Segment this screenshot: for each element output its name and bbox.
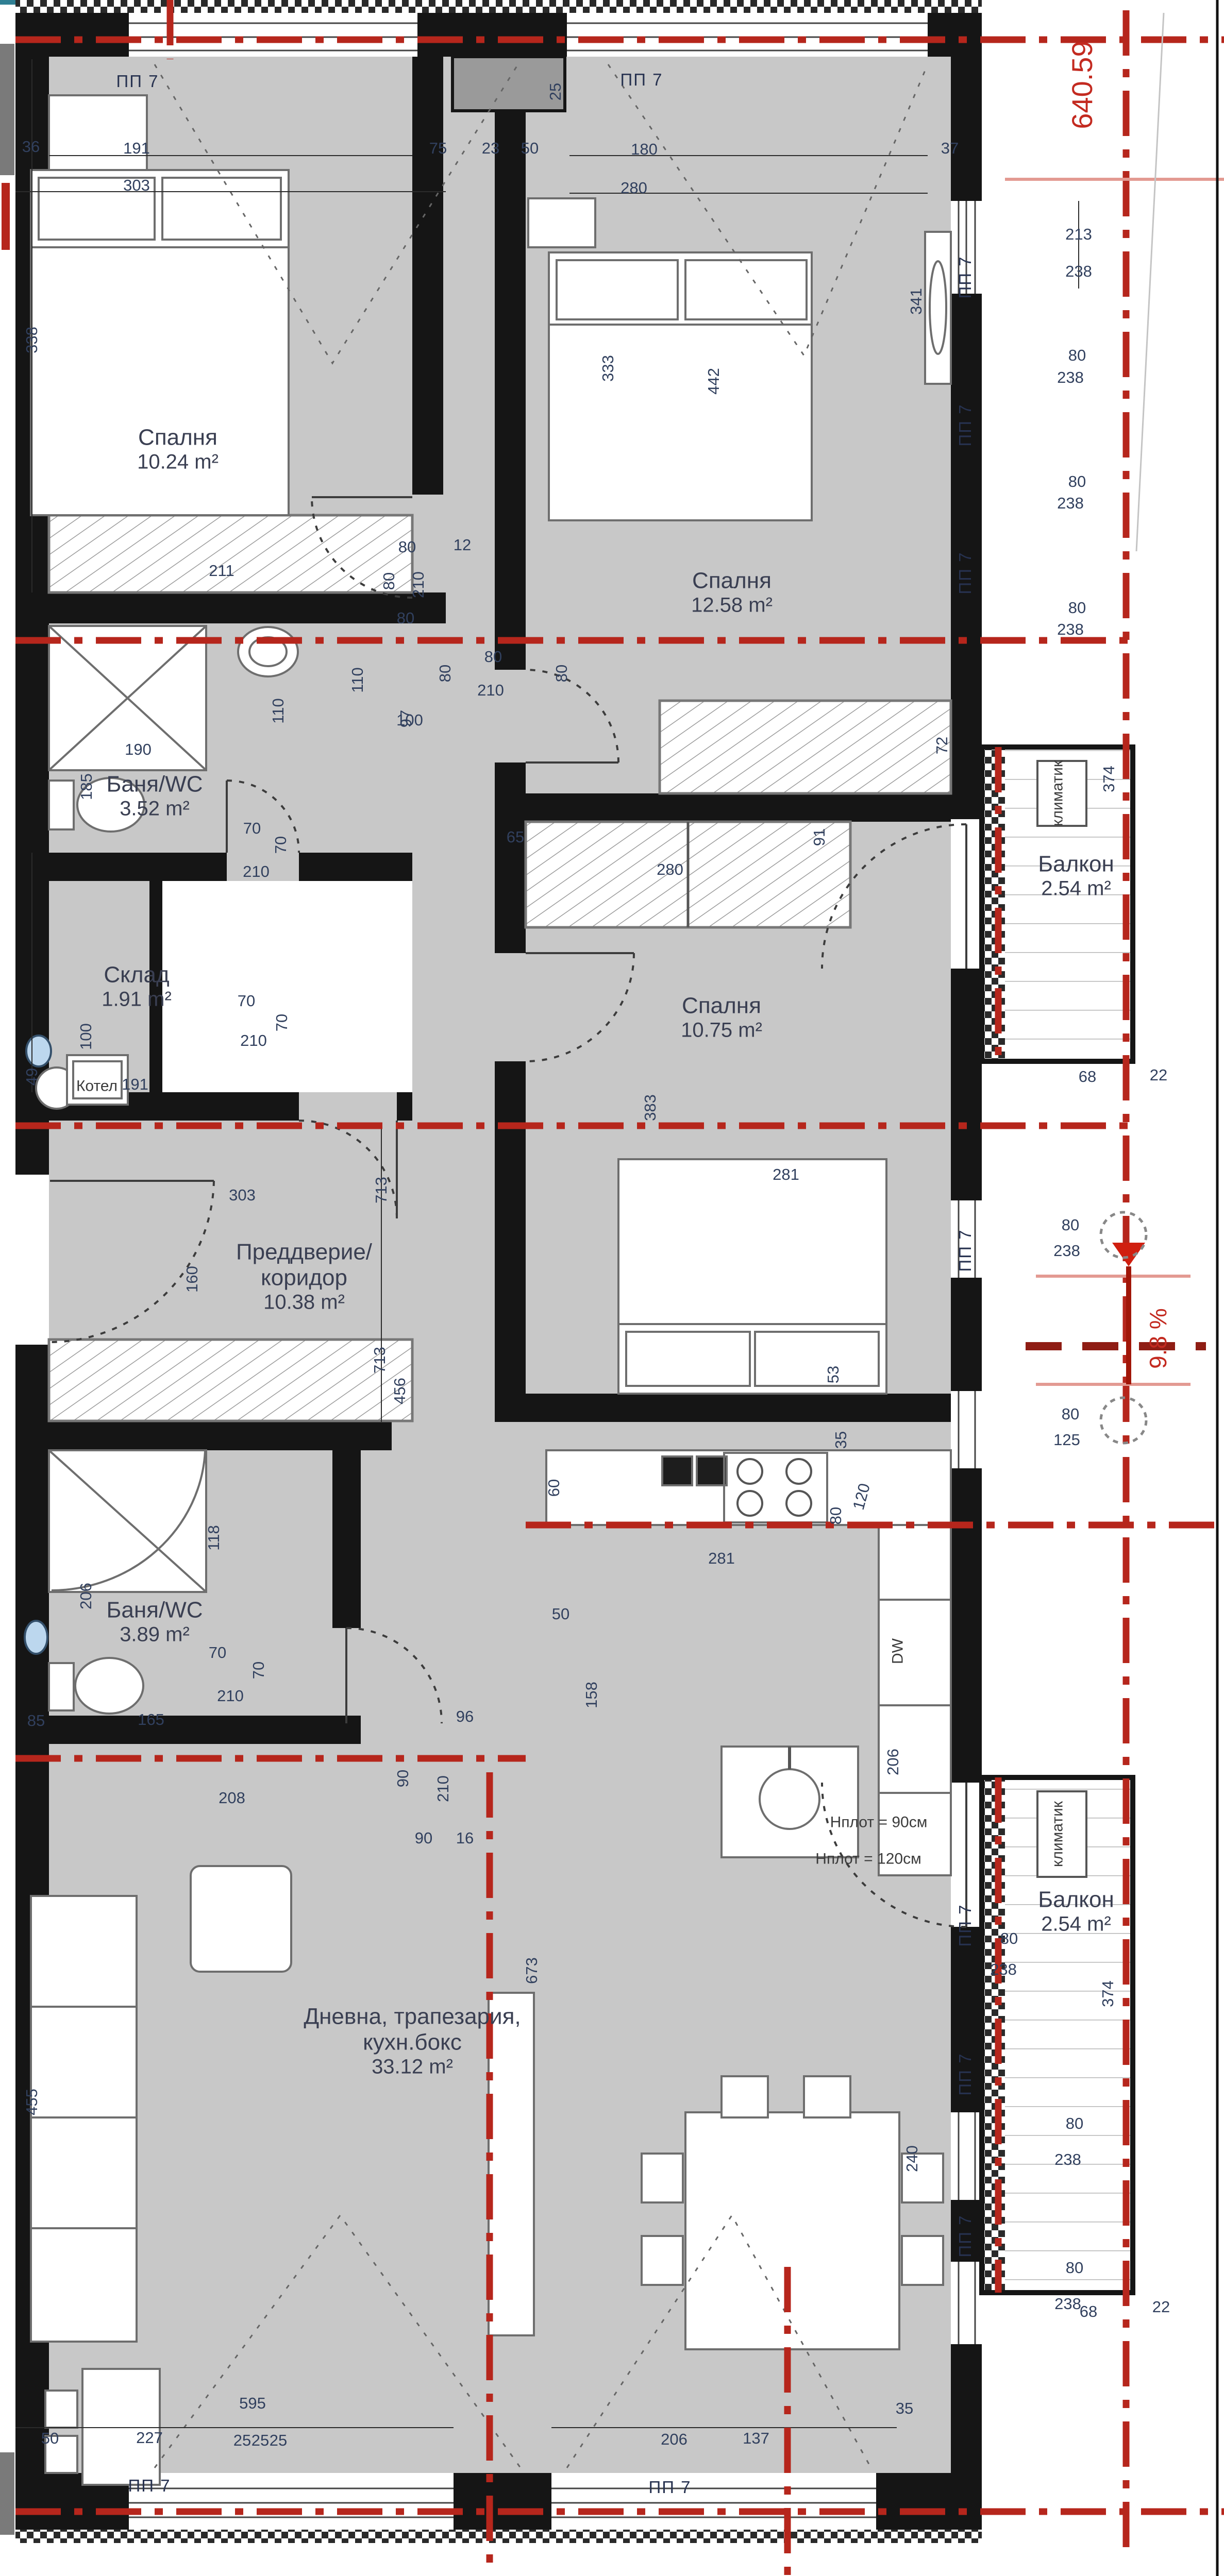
dimension-label: 35 <box>833 1431 849 1449</box>
dimension-label: 70 <box>209 1645 226 1661</box>
room-label: Баня/WC3.52 m² <box>107 772 203 821</box>
dimension-label: 673 <box>524 1957 540 1984</box>
panel-type-label: ПП 7 <box>957 552 974 595</box>
panel-type-label: ПП 7 <box>621 71 663 89</box>
dimension-label: 72 <box>934 737 950 754</box>
dimension-label: 80 <box>381 572 397 590</box>
room-name: Спалня <box>691 568 773 594</box>
annotation-text: DW <box>890 1638 906 1664</box>
dimension-label: 90 <box>415 1830 432 1846</box>
floorplan-page: 3619130375235025180280372132388023880238… <box>0 0 1224 2576</box>
dimension-label: 238 <box>1065 263 1092 280</box>
dimension-label: 210 <box>410 571 427 598</box>
text-overlay: 3619130375235025180280372132388023880238… <box>0 0 1224 2576</box>
panel-type-label: ПП 7 <box>649 2479 692 2496</box>
room-name: Баня/WC <box>107 1598 203 1623</box>
dimension-label: 191 <box>122 1076 148 1093</box>
room-label: Спалня12.58 m² <box>691 568 773 617</box>
annotation-text: климатик <box>1049 1801 1065 1867</box>
dimension-label: 206 <box>885 1749 901 1775</box>
room-area: 3.89 m² <box>107 1623 203 1647</box>
dimension-label: 80 <box>437 665 454 682</box>
dimension-label: 60 <box>546 1479 562 1497</box>
dimension-label: 213 <box>1065 226 1092 243</box>
room-area: 2.54 m² <box>1038 1913 1114 1936</box>
dimension-label: 137 <box>743 2430 769 2447</box>
room-area: 10.24 m² <box>137 451 219 474</box>
dimension-label: 100 <box>396 712 423 728</box>
dimension-label: 110 <box>270 698 287 723</box>
dimension-label: 333 <box>600 355 616 382</box>
dimension-label: 50 <box>552 1606 569 1622</box>
room-label: Спалня10.24 m² <box>137 425 219 474</box>
dimension-label: 165 <box>138 1711 164 1728</box>
dimension-label: 50 <box>41 2430 59 2447</box>
dimension-label: 158 <box>583 1682 600 1708</box>
room-area: 1.91 m² <box>102 988 172 1011</box>
dimension-label: 35 <box>896 2400 913 2417</box>
room-label: Балкон2.54 m² <box>1038 1887 1114 1936</box>
room-area: 12.58 m² <box>691 594 773 617</box>
dimension-label: 80 <box>397 610 414 626</box>
dimension-label: 90 <box>395 1770 411 1787</box>
slope-label: 9.8 % <box>1146 1308 1171 1369</box>
dimension-label: 383 <box>642 1094 659 1121</box>
dimension-label: 37 <box>941 140 959 157</box>
dimension-label: 80 <box>1062 1217 1079 1233</box>
room-label: Баня/WC3.89 m² <box>107 1598 203 1647</box>
room-area: 10.75 m² <box>681 1019 762 1042</box>
dimension-label: 713 <box>373 1177 390 1204</box>
dimension-label: 303 <box>123 177 150 194</box>
dimension-label: 25 <box>251 2432 269 2449</box>
room-label: Спалня10.75 m² <box>681 993 762 1042</box>
dimension-label: 85 <box>27 1713 45 1729</box>
room-name: Преддверие/ коридор <box>236 1240 372 1291</box>
dimension-label: 80 <box>1068 600 1086 616</box>
dimension-label: 70 <box>238 993 255 1009</box>
elevation-label: 640.59 <box>1067 41 1097 129</box>
dimension-label: 206 <box>661 2431 688 2448</box>
dimension-label: 68 <box>1079 1069 1096 1085</box>
dimension-label: 210 <box>243 863 270 880</box>
dimension-label: 281 <box>708 1550 735 1567</box>
dimension-label: 49 <box>24 1068 40 1086</box>
annotation-text: Hплот = 120см <box>815 1851 921 1867</box>
room-area: 10.38 m² <box>236 1291 372 1314</box>
dimension-label: 210 <box>477 682 504 699</box>
dimension-label: 227 <box>136 2430 163 2446</box>
dimension-label: 238 <box>1057 621 1084 638</box>
dimension-label: 22 <box>1152 2299 1170 2315</box>
dimension-label: 80 <box>1068 347 1086 364</box>
dimension-label: 208 <box>219 1790 245 1806</box>
room-label: Балкон2.54 m² <box>1038 852 1114 901</box>
dimension-label: 25 <box>270 2432 287 2449</box>
dimension-label: 180 <box>631 141 658 158</box>
dimension-label: 80 <box>828 1507 844 1524</box>
room-name: Спалня <box>137 425 219 451</box>
room-name: Баня/WC <box>107 772 203 798</box>
room-label: Преддверие/ коридор10.38 m² <box>236 1240 372 1314</box>
dimension-label: 240 <box>904 2145 920 2172</box>
room-label: Дневна, трапезария, кухн.бокс33.12 m² <box>304 2004 521 2079</box>
dimension-label: 280 <box>621 180 647 196</box>
panel-type-label: ПП 7 <box>128 2477 171 2495</box>
dimension-label: 185 <box>78 773 95 800</box>
room-name: Дневна, трапезария, кухн.бокс <box>304 2004 521 2056</box>
dimension-label: 80 <box>398 539 416 555</box>
dimension-label: 75 <box>429 140 447 157</box>
dimension-label: 70 <box>274 1014 290 1031</box>
dimension-label: 91 <box>811 828 828 846</box>
dimension-label: 65 <box>507 829 524 845</box>
dimension-label: 125 <box>1053 1432 1080 1448</box>
dimension-label: 70 <box>243 820 261 837</box>
dimension-label: 118 <box>206 1525 222 1550</box>
dimension-label: 25 <box>233 2432 251 2449</box>
room-name: Балкон <box>1038 1887 1114 1913</box>
dimension-label: 210 <box>240 1032 267 1049</box>
panel-type-label: ПП 7 <box>957 2215 974 2258</box>
dimension-label: 96 <box>456 1708 474 1725</box>
dimension-label: 22 <box>1150 1067 1167 1083</box>
dimension-label: 190 <box>125 741 152 758</box>
dimension-label: 210 <box>217 1688 244 1704</box>
room-area: 2.54 m² <box>1038 877 1114 901</box>
dimension-label: 12 <box>454 537 471 553</box>
dimension-label: 211 <box>209 563 234 579</box>
dimension-label: 120 <box>850 1482 874 1512</box>
annotation-text: Котел <box>76 1078 118 1094</box>
dimension-label: 191 <box>123 140 150 157</box>
dimension-label: 374 <box>1100 1980 1116 2007</box>
dimension-label: 23 <box>482 140 499 157</box>
dimension-label: 50 <box>521 140 539 157</box>
dimension-label: 80 <box>1068 473 1086 490</box>
dimension-label: 70 <box>273 836 289 854</box>
dimension-label: 303 <box>229 1187 256 1204</box>
dimension-label: 210 <box>435 1775 451 1802</box>
dimension-label: 206 <box>78 1583 94 1609</box>
room-label: Склад1.91 m² <box>102 962 172 1011</box>
room-name: Склад <box>102 962 172 988</box>
panel-type-label: ПП 7 <box>957 256 974 299</box>
dimension-label: 280 <box>657 861 683 878</box>
dimension-label: 160 <box>184 1266 200 1293</box>
dimension-label: 53 <box>825 1366 842 1383</box>
dimension-label: 80 <box>1062 1406 1079 1422</box>
dimension-label: 281 <box>773 1166 799 1183</box>
dimension-label: 238 <box>1054 2151 1081 2168</box>
dimension-label: 25 <box>547 83 564 100</box>
annotation-text: Hплот = 90см <box>830 1814 928 1830</box>
panel-type-label: ПП 7 <box>957 1229 974 1272</box>
dimension-label: 238 <box>1053 1243 1080 1259</box>
dimension-label: 16 <box>456 1830 474 1846</box>
dimension-label: 374 <box>1101 766 1117 792</box>
dimension-label: 341 <box>908 288 925 315</box>
dimension-label: 595 <box>239 2395 266 2412</box>
dimension-label: 80 <box>484 649 502 665</box>
dimension-label: 36 <box>22 139 40 155</box>
dimension-label: 238 <box>1057 495 1084 512</box>
room-name: Балкон <box>1038 852 1114 877</box>
dimension-label: 442 <box>706 368 722 395</box>
dimension-label: 80 <box>1066 2260 1083 2276</box>
dimension-label: 110 <box>349 667 366 692</box>
room-area: 3.52 m² <box>107 798 203 821</box>
dimension-label: 455 <box>24 2089 40 2115</box>
dimension-label: 80 <box>554 665 570 682</box>
dimension-label: 238 <box>1057 369 1084 386</box>
dimension-label: 68 <box>1080 2303 1097 2320</box>
dimension-label: 238 <box>990 1961 1017 1978</box>
dimension-label: 80 <box>1000 1930 1018 1947</box>
annotation-text: климатик <box>1049 760 1065 826</box>
room-name: Спалня <box>681 993 762 1019</box>
dimension-label: 713 <box>372 1347 388 1374</box>
panel-type-label: ПП 7 <box>116 73 159 90</box>
dimension-label: 80 <box>1066 2115 1083 2132</box>
dimension-label: 100 <box>78 1023 94 1050</box>
dimension-label: 456 <box>392 1378 408 1404</box>
dimension-label: 238 <box>1054 2296 1081 2312</box>
panel-type-label: ПП 7 <box>957 2053 974 2096</box>
dimension-label: 338 <box>24 327 40 353</box>
panel-type-label: ПП 7 <box>957 1904 974 1947</box>
panel-type-label: ПП 7 <box>957 404 974 447</box>
dimension-label: 70 <box>250 1662 267 1679</box>
room-area: 33.12 m² <box>304 2056 521 2079</box>
